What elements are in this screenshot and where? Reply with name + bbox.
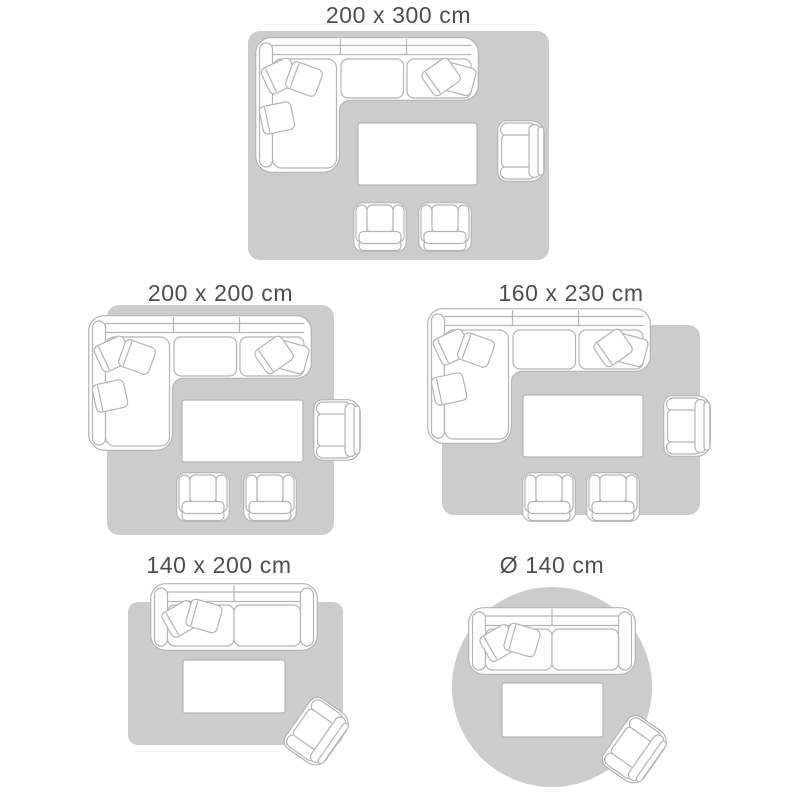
- diagram-160x230: [428, 309, 711, 522]
- diagram-200x200: [89, 305, 361, 535]
- chair-left: [354, 203, 407, 252]
- chair-right: [587, 473, 640, 522]
- coffee-table: [358, 123, 477, 185]
- rug-size-guide-canvas: [0, 0, 800, 800]
- diagram-round-140: [452, 587, 671, 788]
- chair-left: [177, 473, 230, 522]
- coffee-table: [523, 395, 643, 457]
- chair-right: [244, 473, 297, 522]
- two-seat-sofa: [151, 584, 318, 651]
- two-seat-sofa: [469, 608, 636, 675]
- coffee-table: [183, 660, 285, 713]
- armchair: [664, 396, 711, 457]
- chair-left: [523, 473, 576, 522]
- coffee-table: [502, 683, 603, 737]
- armchair: [314, 400, 361, 461]
- chair-right: [419, 203, 472, 252]
- diagram-200x300: [248, 31, 549, 260]
- diagram-140x200: [128, 584, 353, 770]
- coffee-table: [182, 400, 303, 462]
- armchair: [498, 121, 545, 182]
